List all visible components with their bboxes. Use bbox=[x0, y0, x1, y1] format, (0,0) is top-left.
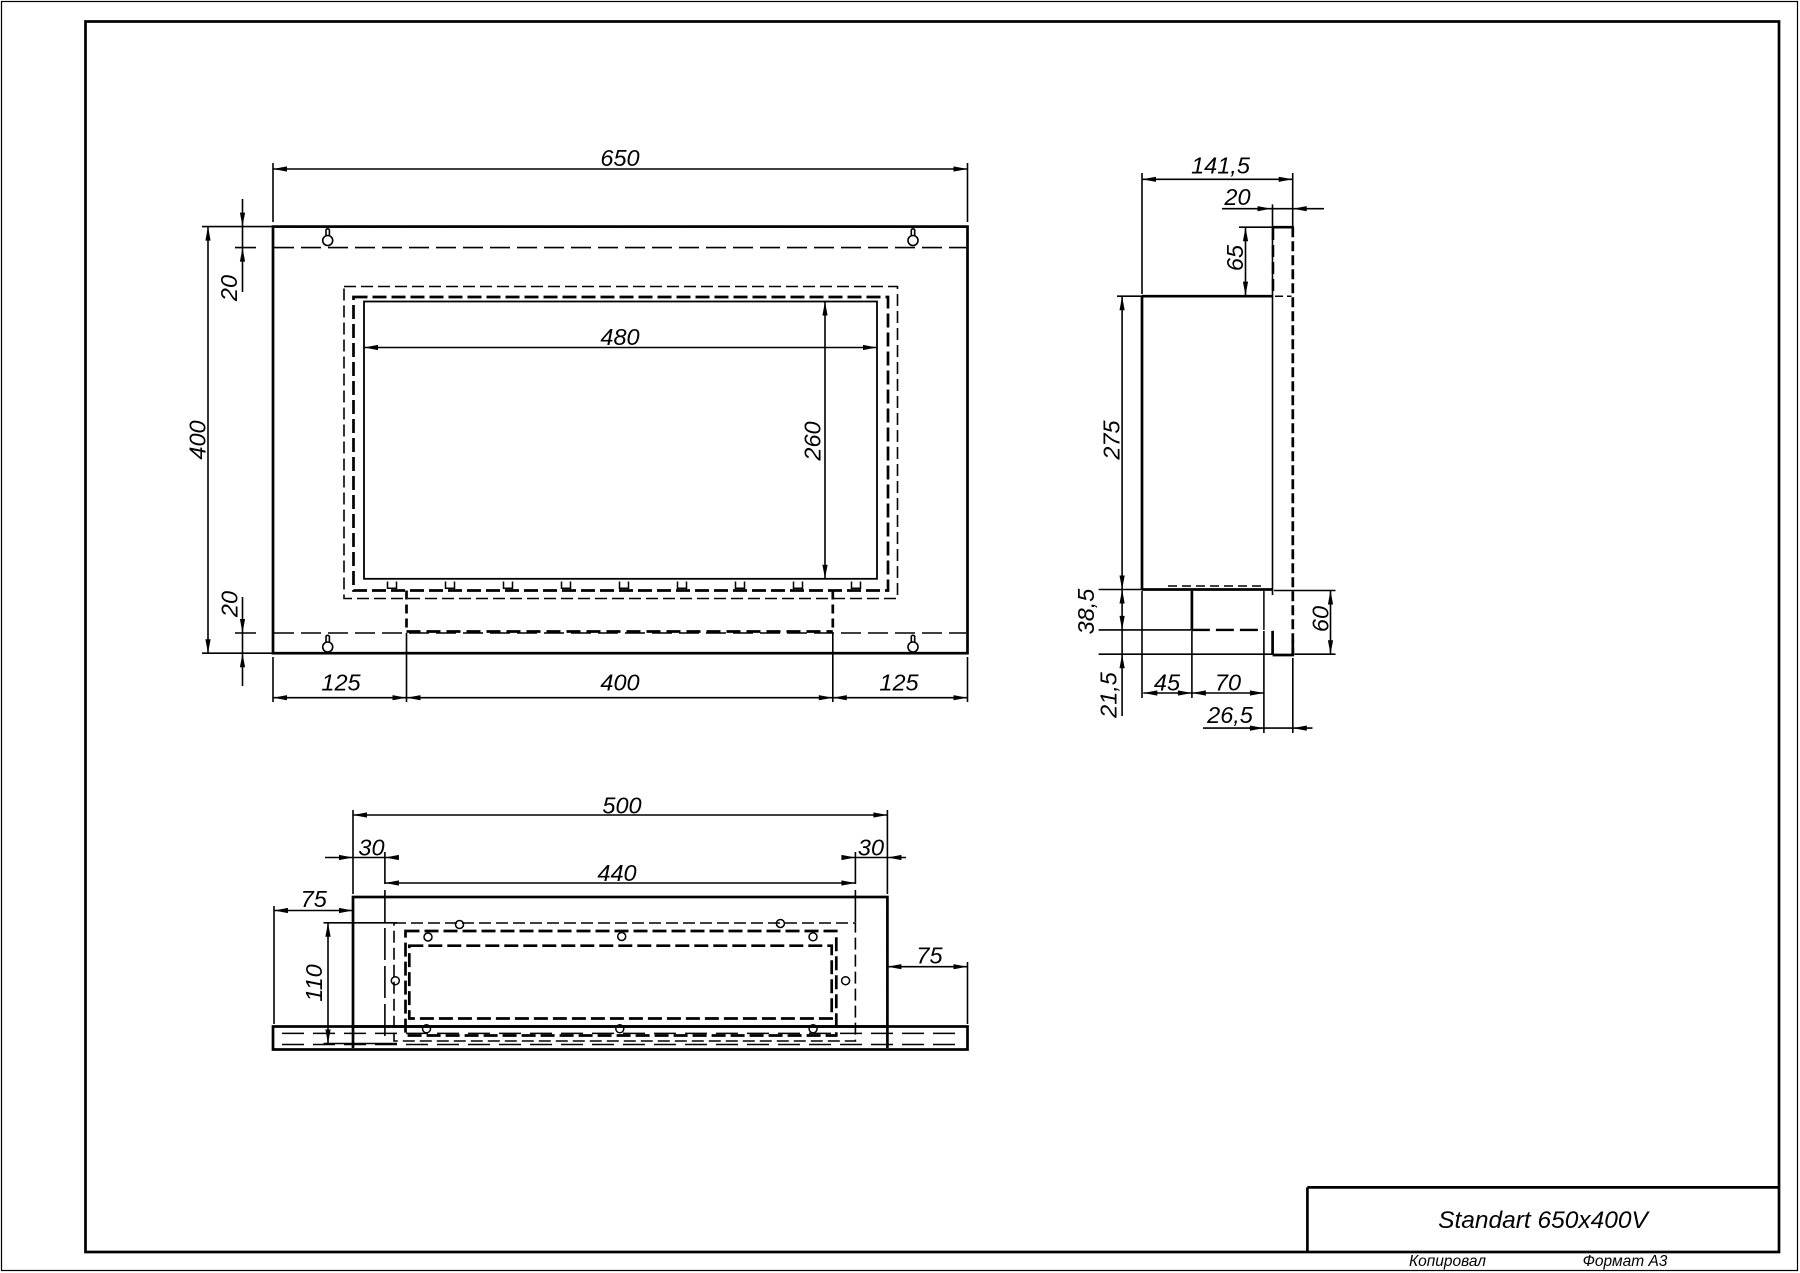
svg-text:260: 260 bbox=[799, 421, 825, 461]
svg-text:30: 30 bbox=[358, 835, 384, 861]
svg-text:480: 480 bbox=[600, 324, 639, 350]
svg-text:141,5: 141,5 bbox=[1191, 153, 1251, 179]
svg-text:650: 650 bbox=[600, 145, 639, 171]
svg-text:Копировал: Копировал bbox=[1409, 1253, 1486, 1270]
svg-text:Формат А3: Формат А3 bbox=[1583, 1253, 1668, 1270]
svg-text:75: 75 bbox=[301, 886, 328, 912]
svg-text:400: 400 bbox=[600, 670, 639, 696]
svg-text:20: 20 bbox=[1223, 184, 1250, 210]
svg-text:400: 400 bbox=[184, 420, 210, 459]
svg-text:38,5: 38,5 bbox=[1073, 588, 1099, 635]
svg-text:65: 65 bbox=[1222, 244, 1248, 271]
svg-text:26,5: 26,5 bbox=[1206, 702, 1254, 728]
svg-text:45: 45 bbox=[1154, 670, 1181, 696]
svg-text:30: 30 bbox=[858, 835, 884, 861]
svg-text:125: 125 bbox=[321, 670, 361, 696]
svg-text:75: 75 bbox=[916, 942, 943, 968]
svg-text:125: 125 bbox=[879, 670, 919, 696]
svg-text:440: 440 bbox=[597, 860, 636, 886]
svg-text:20: 20 bbox=[216, 275, 242, 302]
svg-text:70: 70 bbox=[1215, 670, 1241, 696]
svg-text:500: 500 bbox=[602, 793, 641, 819]
svg-text:60: 60 bbox=[1307, 606, 1333, 632]
svg-text:21,5: 21,5 bbox=[1096, 671, 1122, 719]
svg-text:20: 20 bbox=[216, 591, 242, 618]
svg-text:110: 110 bbox=[301, 964, 327, 1001]
svg-text:Standart 650x400V: Standart 650x400V bbox=[1438, 1207, 1650, 1234]
svg-text:275: 275 bbox=[1098, 419, 1124, 460]
